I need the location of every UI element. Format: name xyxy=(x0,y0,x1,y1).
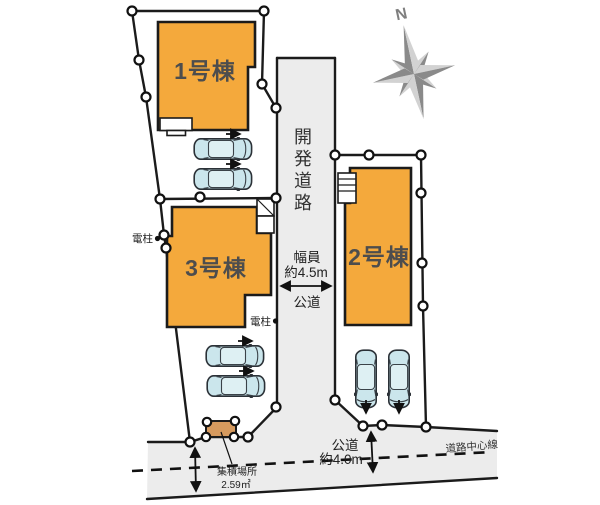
unit3-parking xyxy=(206,341,264,398)
car-icon xyxy=(354,350,378,407)
unit2-parking xyxy=(354,350,411,413)
car-icon xyxy=(194,167,251,191)
utility-pole-left: 電柱 xyxy=(132,232,160,245)
unit2-porch xyxy=(338,173,356,203)
unit1-label: 1号棟 xyxy=(174,58,236,84)
road-width-caption: 幅員 xyxy=(294,250,321,265)
unit2-label: 2号棟 xyxy=(348,244,410,270)
car-icon xyxy=(194,137,251,161)
unit3-label: 3号棟 xyxy=(185,255,247,281)
utility-pole-dot xyxy=(273,318,278,323)
site-plan: 1号棟 3号棟 2号棟 集積場所 2.59㎡ xyxy=(0,0,600,505)
compass-icon: N xyxy=(359,0,465,128)
road-width-value: 約4.5m xyxy=(284,265,328,280)
utility-pole-left-label: 電柱 xyxy=(132,232,153,245)
development-road-label: 開発道路 xyxy=(294,127,314,213)
site-plan-drawing: 1号棟 3号棟 2号棟 集積場所 2.59㎡ xyxy=(0,0,600,505)
unit3-porch xyxy=(257,199,274,233)
unit1-parking xyxy=(194,134,251,191)
car-icon xyxy=(207,374,264,398)
compass-north-label: N xyxy=(394,5,409,24)
car-icon xyxy=(206,344,263,368)
bottom-road-label: 公道 xyxy=(332,438,359,453)
unit1-porch xyxy=(160,118,192,131)
car-icon xyxy=(387,350,411,407)
collection-area-name: 集積場所 xyxy=(217,465,257,478)
utility-pole-right: 電柱 xyxy=(250,315,278,328)
unit1-porch-step xyxy=(167,131,186,136)
boundary-lot1-right xyxy=(262,11,276,108)
collection-area-size: 2.59㎡ xyxy=(221,479,250,491)
utility-pole-right-label: 電柱 xyxy=(250,315,271,328)
bottom-road-width-arrow-left xyxy=(195,448,196,491)
bottom-road-width: 約4.0m xyxy=(319,452,363,467)
utility-pole-dot xyxy=(155,236,160,241)
public-road-side-label: 公道 xyxy=(294,295,321,310)
